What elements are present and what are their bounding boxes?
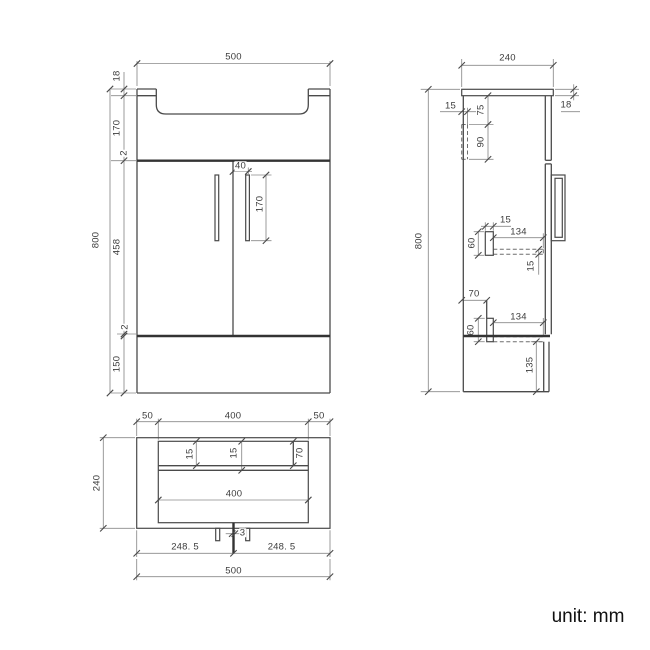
sv-rail-offset-dim: 75	[476, 105, 486, 116]
sv-shelf-support-height-dim: 60	[467, 238, 477, 249]
fv-overall-height-dim: 800	[91, 232, 101, 248]
sv-shelf-thickness-dim: 15	[526, 261, 536, 272]
pv-overhang-right-dim: 50	[314, 411, 325, 421]
fv-handle-length-dim: 170	[255, 196, 265, 212]
drawing-linework	[0, 0, 650, 650]
sv-shelf-support-width-dim: 15	[500, 215, 511, 225]
pv-bowl-width-dim: 400	[225, 489, 243, 499]
pv-right-half-dim: 248. 5	[268, 542, 296, 552]
fv-plinth-height-dim: 150	[112, 356, 122, 372]
fv-top-thickness-dim: 18	[112, 71, 122, 82]
fv-width-dim: 500	[225, 52, 241, 62]
pv-total-width-dim: 500	[225, 566, 241, 576]
pv-panel-thickness-dim: 15	[229, 447, 239, 460]
technical-drawing: 500 18 170 2 458 2 150 800 40 170 240 18…	[0, 0, 650, 650]
sv-bottom-support-height-dim: 60	[466, 325, 476, 336]
pv-depth-dim: 240	[92, 475, 102, 491]
sv-top-thickness-dim: 18	[561, 100, 572, 110]
sv-depth-dim: 240	[499, 53, 515, 63]
pv-left-half-dim: 248. 5	[171, 542, 199, 552]
sv-rail-width-dim: 15	[445, 101, 456, 111]
pv-corner-depth-dim: 70	[295, 447, 305, 460]
pv-top-width-dim: 400	[225, 411, 241, 421]
sv-shelf-depth-dim: 134	[510, 227, 526, 237]
sv-bottom-depth-dim: 134	[510, 312, 526, 322]
sv-rail-height-dim: 90	[476, 136, 486, 147]
pv-back-inset-dim: 15	[185, 448, 195, 461]
sv-bottom-offset-dim: 70	[469, 289, 480, 299]
fv-basin-height-dim: 170	[112, 120, 122, 136]
pv-waste-gap-dim: 3	[239, 528, 246, 538]
fv-door-height-dim: 458	[112, 239, 122, 255]
fv-handle-offset-dim: 40	[234, 161, 247, 171]
pv-overhang-left-dim: 50	[142, 411, 153, 421]
unit-label: unit: mm	[552, 606, 625, 628]
fv-gap-bottom-dim: 2	[120, 323, 130, 330]
fv-gap-top-dim: 2	[119, 149, 129, 156]
sv-plinth-height-dim: 135	[525, 356, 535, 372]
sv-overall-height-dim: 800	[414, 233, 424, 249]
